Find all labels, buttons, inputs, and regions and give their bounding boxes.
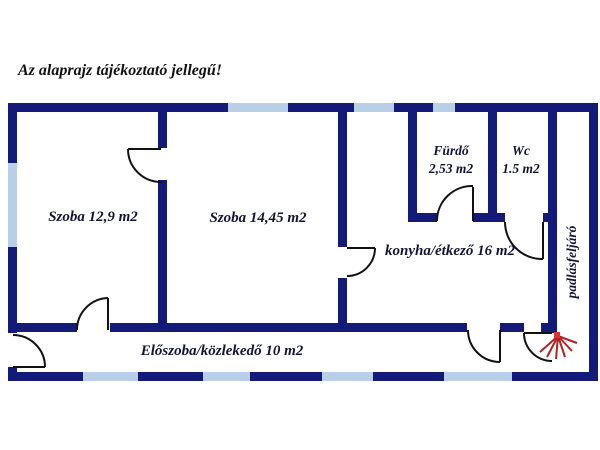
attic-stairs-icon bbox=[540, 332, 577, 359]
room-label-konyha: konyha/étkező 16 m2 bbox=[385, 241, 515, 261]
wall-furdo-left bbox=[408, 112, 417, 222]
wall-attic-strip-left bbox=[548, 112, 557, 333]
window-top-3 bbox=[433, 103, 455, 112]
door-arc-furdo bbox=[437, 186, 473, 221]
wall-eloszoba-top-stub bbox=[541, 323, 548, 332]
window-bottom-2 bbox=[203, 372, 250, 381]
wall-furdo-wc-divider bbox=[488, 112, 497, 222]
room-label-eloszoba: Előszoba/közlekedő 10 m2 bbox=[141, 341, 304, 361]
window-top-2 bbox=[354, 103, 394, 112]
window-bottom-1 bbox=[83, 372, 138, 381]
door-arc-szoba-divider bbox=[128, 149, 161, 182]
room-label-szoba2: Szoba 14,45 m2 bbox=[209, 208, 306, 228]
room-label-furdo: Fürdő 2,53 m2 bbox=[429, 142, 473, 178]
door-arc-szoba1 bbox=[77, 298, 108, 330]
door-arc-konyha bbox=[347, 248, 375, 276]
wall-eloszoba-top-3 bbox=[500, 323, 524, 332]
wall-wc-bottom-stub bbox=[543, 213, 557, 222]
wall-outer-right bbox=[589, 103, 598, 381]
wall-outer-left-lower bbox=[8, 367, 17, 381]
window-left bbox=[8, 163, 17, 247]
wall-outer-left-upper bbox=[8, 103, 17, 163]
wall-outer-left-mid bbox=[8, 247, 17, 333]
wall-outer-top bbox=[8, 103, 598, 112]
room-label-wc-name: Wc bbox=[502, 142, 540, 160]
floorplan-canvas: Az alaprajz tájékoztató jellegű! bbox=[0, 0, 600, 450]
floorplan-disclaimer-title: Az alaprajz tájékoztató jellegű! bbox=[18, 62, 222, 80]
wall-furdo-bottom-right bbox=[473, 213, 505, 222]
door-arc-entrance bbox=[13, 335, 45, 367]
wall-eloszoba-top-1 bbox=[17, 323, 77, 332]
wall-szoba-divider-upper bbox=[158, 112, 167, 148]
window-bottom-4 bbox=[444, 372, 512, 381]
room-label-padlasfeljaro: padlásfeljáró bbox=[563, 226, 581, 299]
wall-furdo-bottom-left bbox=[408, 213, 437, 222]
door-arc-attic bbox=[524, 333, 552, 361]
wall-szoba-divider-lower bbox=[158, 180, 167, 332]
window-top-1 bbox=[228, 103, 288, 112]
room-label-furdo-area: 2,53 m2 bbox=[429, 160, 473, 178]
room-label-szoba1: Szoba 12,9 m2 bbox=[48, 207, 138, 227]
room-label-furdo-name: Fürdő bbox=[429, 142, 473, 160]
wall-szoba2-konyha-upper bbox=[338, 112, 347, 247]
window-bottom-3 bbox=[322, 372, 373, 381]
wall-eloszoba-top-2 bbox=[110, 323, 467, 332]
room-label-wc: Wc 1.5 m2 bbox=[502, 142, 540, 178]
room-label-wc-area: 1.5 m2 bbox=[502, 160, 540, 178]
door-arc-eloszoba bbox=[468, 330, 500, 362]
